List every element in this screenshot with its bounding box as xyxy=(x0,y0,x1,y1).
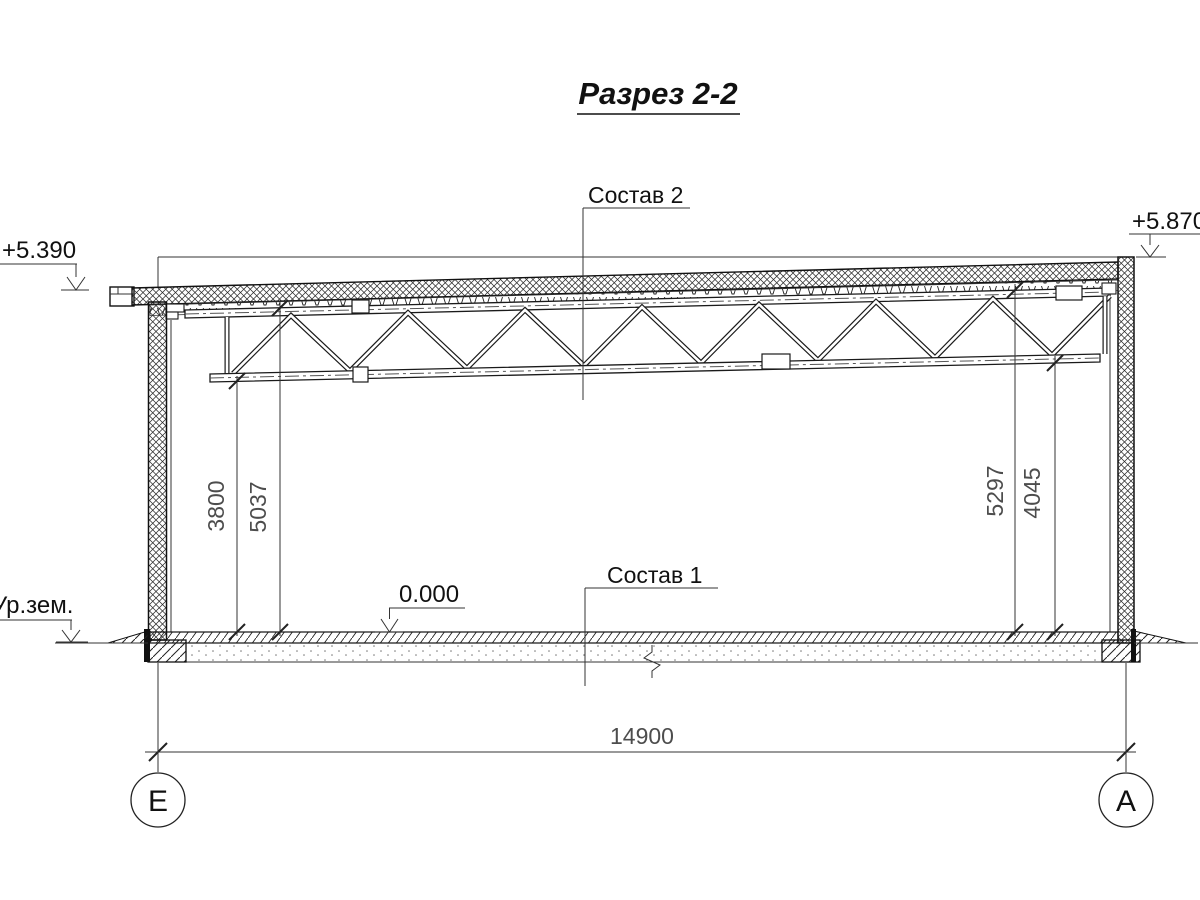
foundation-left xyxy=(148,640,186,662)
elevation-roof-right: +5.870 xyxy=(1129,208,1200,257)
dim-left-3800-value: 3800 xyxy=(203,480,229,531)
elevation-roof-right-value: +5.870 xyxy=(1132,208,1200,235)
axis-right: А xyxy=(1099,663,1153,827)
dim-left-5037: 5037 xyxy=(245,300,288,640)
dim-span-value: 14900 xyxy=(610,723,674,749)
callout-floor-label: Состав 1 xyxy=(607,562,702,588)
truss-bearing-right xyxy=(1102,283,1116,294)
dim-left-5037-value: 5037 xyxy=(245,481,271,532)
elevation-ground-label: Ур.зем. xyxy=(0,592,73,619)
axis-right-label: А xyxy=(1116,785,1136,818)
axis-left: Е xyxy=(131,663,185,827)
dim-right-4045: 4045 xyxy=(1019,355,1063,640)
roof-fascia-left xyxy=(110,287,134,306)
elevation-ground: Ур.зем. xyxy=(0,592,88,642)
elevation-roof-left: +5.390 xyxy=(0,237,89,290)
drawing-title: Разрез 2-2 xyxy=(578,76,737,111)
dim-right-5297-value: 5297 xyxy=(982,465,1008,516)
axis-left-label: Е xyxy=(148,785,168,818)
section-drawing: Разрез 2-2 xyxy=(0,0,1200,900)
callout-roof-label: Состав 2 xyxy=(588,182,683,208)
ground-wedge-left xyxy=(108,631,148,643)
dim-span: 14900 xyxy=(145,723,1136,761)
callout-floor: Состав 1 xyxy=(585,562,718,686)
floor-slab xyxy=(150,632,1140,678)
elevation-floor: 0.000 xyxy=(375,581,465,632)
dim-right-5297: 5297 xyxy=(982,282,1023,640)
truss-bearing-left xyxy=(166,304,184,319)
dim-left-3800: 3800 xyxy=(203,373,245,640)
elevation-floor-value: 0.000 xyxy=(399,581,459,608)
wall-right xyxy=(1118,257,1134,643)
dim-right-4045-value: 4045 xyxy=(1019,467,1045,518)
elevation-roof-left-value: +5.390 xyxy=(2,237,76,264)
drawing-sheet: Разрез 2-2 xyxy=(0,0,1200,900)
wall-left xyxy=(149,302,167,640)
ground-wedge-right xyxy=(1134,631,1186,643)
